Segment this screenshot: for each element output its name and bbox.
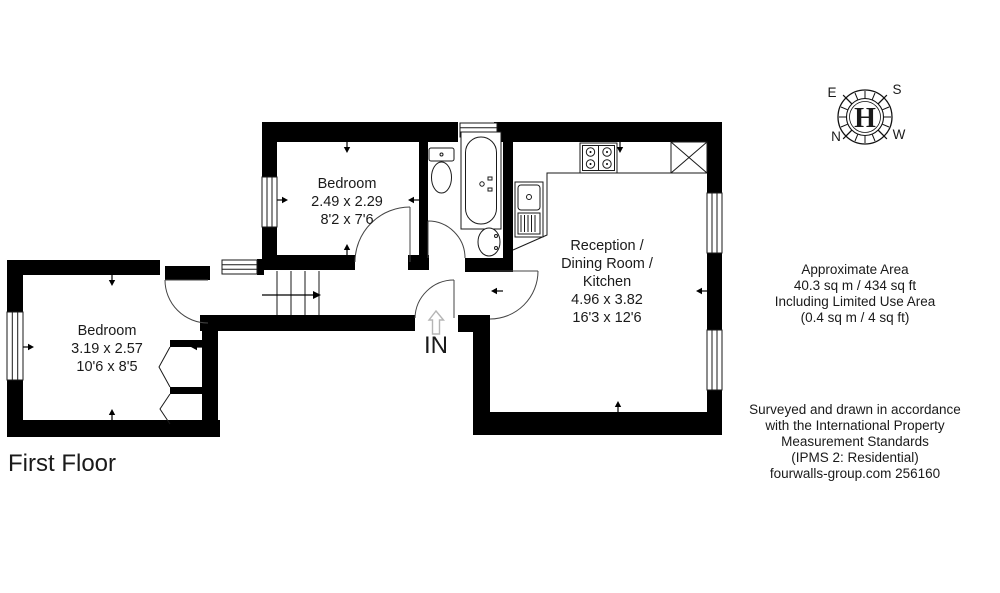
wall-segment bbox=[473, 412, 722, 435]
wall-segment bbox=[7, 420, 220, 437]
room-name: Kitchen bbox=[583, 274, 631, 290]
wardrobe-icon bbox=[159, 340, 203, 424]
survey-note-line: Measurement Standards bbox=[781, 434, 929, 449]
wall-segment bbox=[257, 259, 264, 275]
room-name: Bedroom bbox=[318, 176, 377, 192]
wall-segment bbox=[503, 140, 513, 272]
wall-segment bbox=[202, 315, 218, 437]
wall-segment bbox=[707, 140, 722, 193]
survey-note-line: with the International Property bbox=[764, 418, 945, 433]
wall-segment bbox=[494, 122, 722, 142]
window bbox=[707, 330, 722, 390]
wall-segment bbox=[707, 390, 722, 435]
area-note-line: (0.4 sq m / 4 sq ft) bbox=[801, 310, 910, 325]
window bbox=[222, 260, 257, 274]
door-arc bbox=[490, 271, 538, 319]
compass-north-label: N bbox=[831, 129, 841, 144]
survey-note: Surveyed and drawn in accordance with th… bbox=[749, 402, 961, 481]
compass-logo: H bbox=[854, 103, 876, 134]
survey-note-line: Surveyed and drawn in accordance bbox=[749, 402, 961, 417]
entrance-arrow-icon bbox=[429, 311, 444, 334]
room-size-imperial: 16'3 x 12'6 bbox=[572, 310, 641, 326]
room-labels: Bedroom 2.49 x 2.29 8'2 x 7'6 Bedroom 3.… bbox=[71, 176, 654, 375]
window bbox=[7, 312, 23, 380]
window bbox=[707, 193, 722, 253]
basin-icon bbox=[478, 228, 500, 256]
compass-west-label: W bbox=[893, 127, 906, 142]
entrance: IN bbox=[424, 311, 448, 359]
survey-note-line: fourwalls-group.com 256160 bbox=[770, 466, 940, 481]
bathtub-icon bbox=[461, 132, 501, 229]
wall-segment bbox=[707, 253, 722, 330]
room-size-imperial: 8'2 x 7'6 bbox=[320, 212, 373, 228]
stairs-icon bbox=[262, 271, 321, 315]
compass-south-label: S bbox=[892, 82, 901, 97]
wall-segment bbox=[262, 255, 355, 270]
toilet-icon bbox=[429, 148, 454, 193]
door-arc bbox=[428, 221, 465, 258]
area-note: Approximate Area 40.3 sq m / 434 sq ft I… bbox=[775, 262, 936, 325]
floor-title: First Floor bbox=[8, 450, 116, 477]
window bbox=[262, 177, 277, 227]
room-size-metric: 3.19 x 2.57 bbox=[71, 341, 143, 357]
room-label-reception: Reception / Dining Room / Kitchen 4.96 x… bbox=[561, 238, 654, 326]
floorplan-page: IN Bedroom 2.49 x 2.29 8'2 x 7'6 Bedroom… bbox=[0, 0, 1000, 593]
room-name: Bedroom bbox=[78, 323, 137, 339]
area-note-line: 40.3 sq m / 434 sq ft bbox=[794, 278, 917, 293]
room-name: Dining Room / bbox=[561, 256, 654, 272]
room-size-metric: 4.96 x 3.82 bbox=[571, 292, 643, 308]
room-name: Reception / bbox=[570, 238, 644, 254]
room-size-imperial: 10'6 x 8'5 bbox=[76, 359, 137, 375]
area-note-line: Approximate Area bbox=[801, 262, 909, 277]
room-size-metric: 2.49 x 2.29 bbox=[311, 194, 383, 210]
survey-note-line: (IPMS 2: Residential) bbox=[791, 450, 919, 465]
bathroom-fixtures bbox=[429, 132, 501, 256]
wall-segment bbox=[200, 315, 415, 331]
compass-east-label: E bbox=[827, 85, 836, 100]
compass-rose: H E S N W bbox=[827, 82, 905, 144]
wall-segment bbox=[262, 142, 277, 177]
room-label-bedroom-left: Bedroom 3.19 x 2.57 10'6 x 8'5 bbox=[71, 323, 143, 375]
wall-segment bbox=[7, 275, 23, 312]
wall-segment bbox=[419, 142, 428, 258]
wall-segment bbox=[165, 266, 210, 280]
kitchen-sink-icon bbox=[515, 182, 543, 237]
hob-icon bbox=[580, 143, 617, 173]
wall-segment bbox=[7, 260, 160, 275]
area-note-line: Including Limited Use Area bbox=[775, 294, 936, 309]
entrance-label: IN bbox=[424, 332, 448, 359]
room-label-bedroom-top: Bedroom 2.49 x 2.29 8'2 x 7'6 bbox=[311, 176, 383, 228]
wall-segment bbox=[458, 315, 490, 332]
floor-plan-drawing: IN Bedroom 2.49 x 2.29 8'2 x 7'6 Bedroom… bbox=[0, 0, 1000, 593]
wall-segment bbox=[262, 122, 458, 142]
kitchen-fixtures bbox=[513, 142, 707, 250]
void-cross-icon bbox=[671, 142, 707, 173]
